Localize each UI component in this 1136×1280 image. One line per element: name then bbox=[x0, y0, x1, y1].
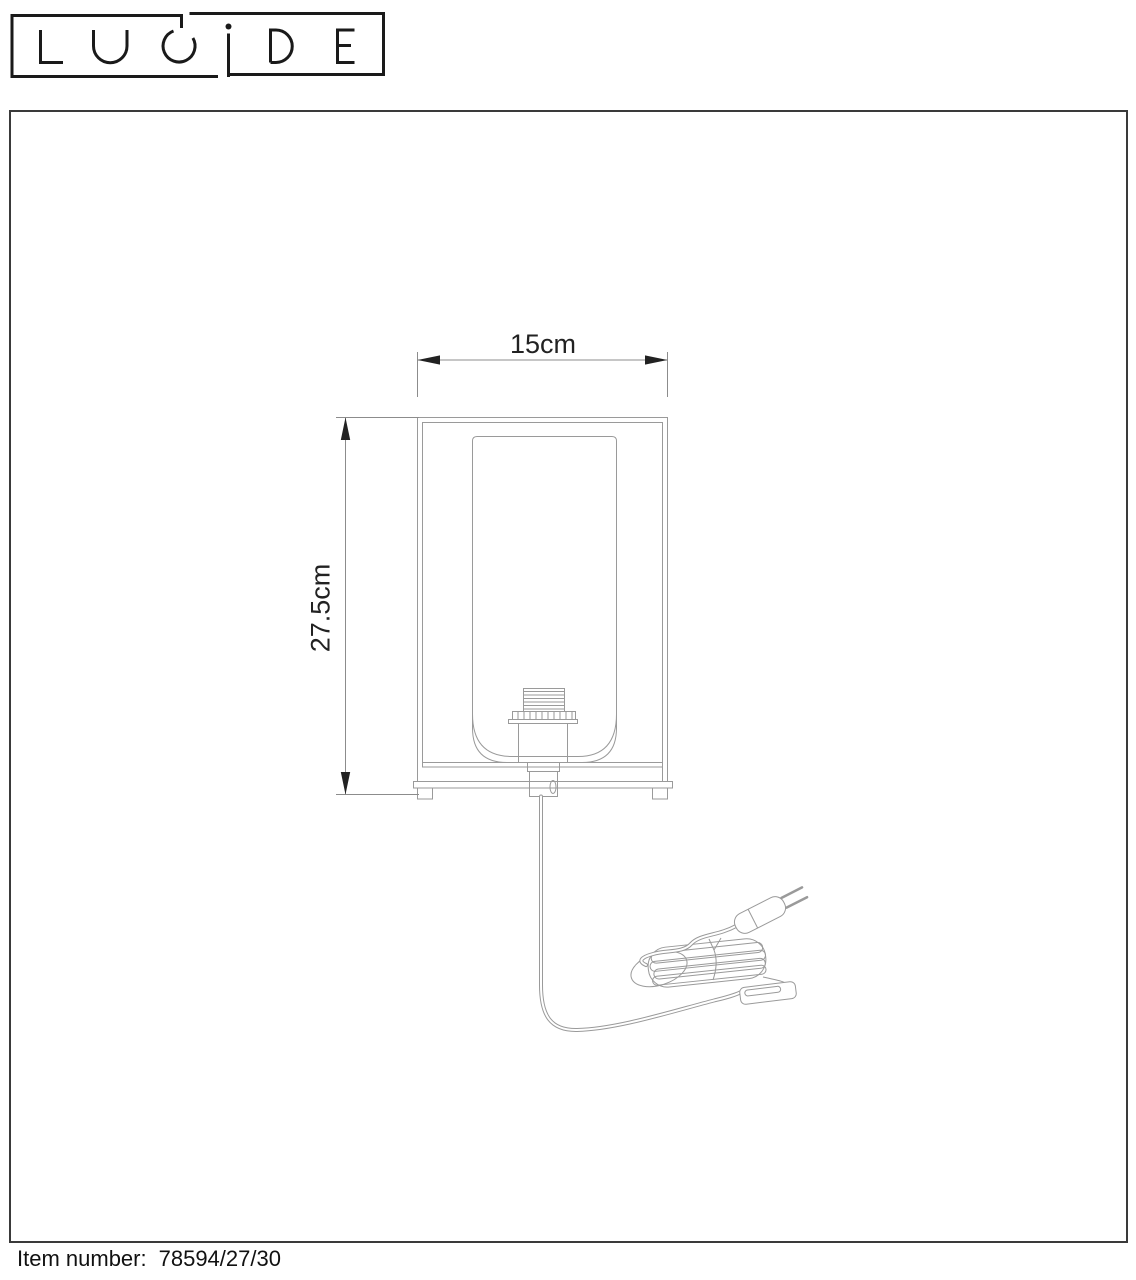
lamp-technical-drawing bbox=[0, 0, 1136, 1280]
item-number-value: 78594/27/30 bbox=[159, 1246, 281, 1271]
cord-gland bbox=[530, 772, 558, 797]
width-dimension-label: 15cm bbox=[510, 329, 576, 360]
arrow-left bbox=[418, 355, 441, 364]
item-number-line: Item number:78594/27/30 bbox=[17, 1246, 281, 1272]
plug-cord bbox=[641, 926, 736, 965]
right-foot bbox=[653, 788, 668, 799]
arrow-top bbox=[341, 418, 350, 441]
power-plug bbox=[731, 883, 809, 937]
arrow-right bbox=[645, 355, 668, 364]
left-foot bbox=[418, 788, 433, 799]
power-cord bbox=[541, 797, 742, 1031]
arrow-bottom bbox=[341, 772, 350, 795]
height-dimension-label: 27.5cm bbox=[306, 564, 337, 653]
glass-shade bbox=[473, 437, 617, 763]
height-dimension bbox=[336, 418, 419, 795]
lamp-frame bbox=[418, 418, 668, 782]
item-number-label: Item number: bbox=[17, 1246, 147, 1271]
inline-switch bbox=[739, 981, 797, 1005]
technical-drawing-page: 15cm 27.5cm Item number:78594/27/30 bbox=[0, 0, 1136, 1280]
lamp-socket bbox=[509, 689, 578, 797]
